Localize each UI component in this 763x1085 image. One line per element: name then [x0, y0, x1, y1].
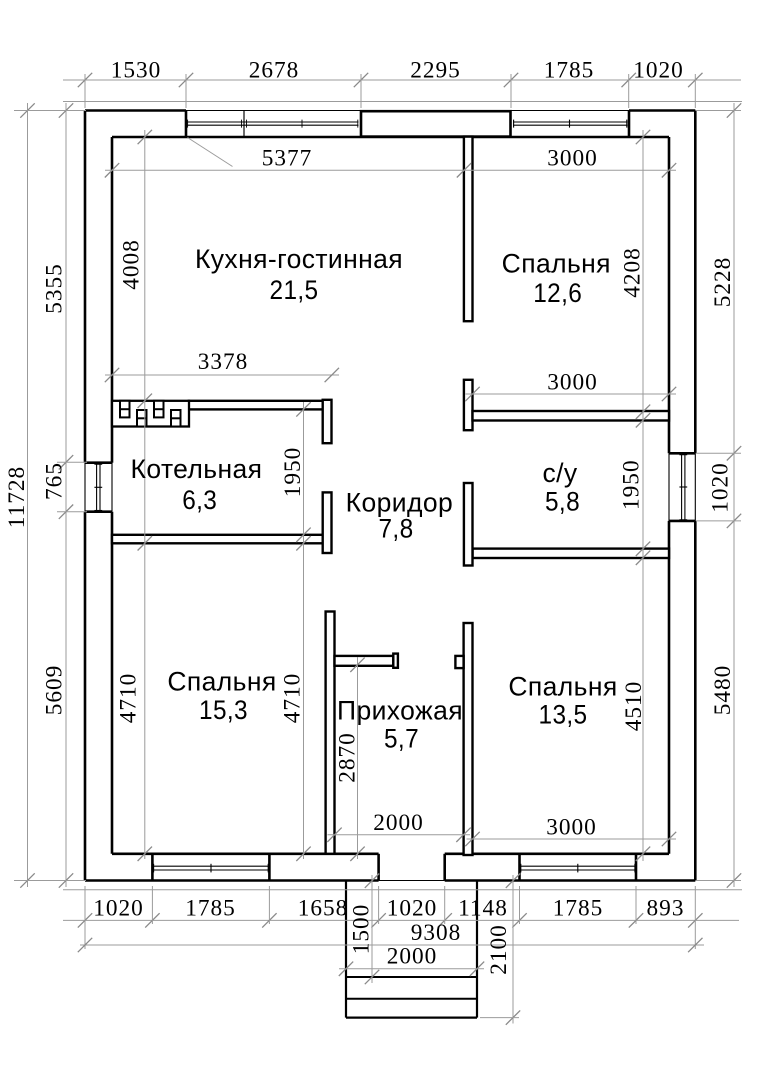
svg-text:1020: 1020 [387, 895, 438, 921]
svg-text:4208: 4208 [619, 247, 645, 298]
svg-text:Спальня: Спальня [167, 667, 276, 697]
svg-text:13,5: 13,5 [539, 701, 588, 730]
svg-text:Кухня-гостинная: Кухня-гостинная [195, 244, 403, 274]
svg-text:5355: 5355 [41, 263, 67, 314]
svg-text:893: 893 [647, 895, 685, 921]
svg-text:765: 765 [41, 462, 67, 500]
svg-text:11728: 11728 [4, 466, 30, 528]
svg-text:2000: 2000 [387, 943, 438, 969]
svg-text:7,8: 7,8 [379, 515, 414, 544]
svg-text:2100: 2100 [486, 924, 512, 975]
svg-text:5228: 5228 [710, 257, 736, 308]
svg-text:6,3: 6,3 [182, 486, 217, 515]
svg-text:Прихожая: Прихожая [337, 696, 463, 726]
svg-text:1950: 1950 [280, 447, 306, 498]
svg-text:1785: 1785 [544, 57, 595, 83]
svg-text:Спальня: Спальня [508, 672, 617, 702]
svg-text:1785: 1785 [553, 895, 604, 921]
svg-text:5377: 5377 [262, 145, 313, 171]
svg-text:1950: 1950 [618, 459, 644, 510]
svg-text:Спальня: Спальня [502, 249, 611, 279]
svg-text:3000: 3000 [546, 814, 597, 840]
svg-text:Котельная: Котельная [131, 454, 263, 484]
svg-text:1148: 1148 [458, 895, 508, 921]
svg-text:1020: 1020 [633, 57, 684, 83]
svg-text:4710: 4710 [279, 673, 305, 724]
svg-text:3378: 3378 [198, 349, 249, 375]
svg-text:2295: 2295 [410, 57, 461, 83]
svg-text:Коридор: Коридор [346, 488, 453, 518]
svg-text:15,3: 15,3 [199, 696, 248, 725]
svg-text:2000: 2000 [373, 810, 424, 836]
svg-text:21,5: 21,5 [270, 276, 319, 305]
svg-text:4008: 4008 [118, 239, 144, 290]
svg-text:1020: 1020 [93, 895, 144, 921]
svg-text:5,7: 5,7 [384, 725, 419, 754]
svg-text:1500: 1500 [348, 904, 374, 955]
svg-text:1658: 1658 [298, 895, 349, 921]
svg-text:5609: 5609 [41, 665, 67, 716]
svg-text:3000: 3000 [547, 145, 598, 171]
svg-text:1020: 1020 [707, 462, 733, 513]
svg-text:4710: 4710 [115, 673, 141, 724]
svg-text:12,6: 12,6 [533, 279, 582, 308]
svg-text:4510: 4510 [621, 681, 647, 732]
svg-text:5480: 5480 [710, 665, 736, 716]
svg-text:9308: 9308 [411, 920, 462, 946]
svg-text:5,8: 5,8 [545, 488, 580, 517]
svg-text:2870: 2870 [334, 732, 360, 783]
svg-text:2678: 2678 [249, 57, 300, 83]
svg-text:1530: 1530 [111, 57, 162, 83]
svg-text:3000: 3000 [547, 369, 598, 395]
svg-text:с/у: с/у [542, 458, 577, 488]
svg-text:1785: 1785 [185, 895, 236, 921]
